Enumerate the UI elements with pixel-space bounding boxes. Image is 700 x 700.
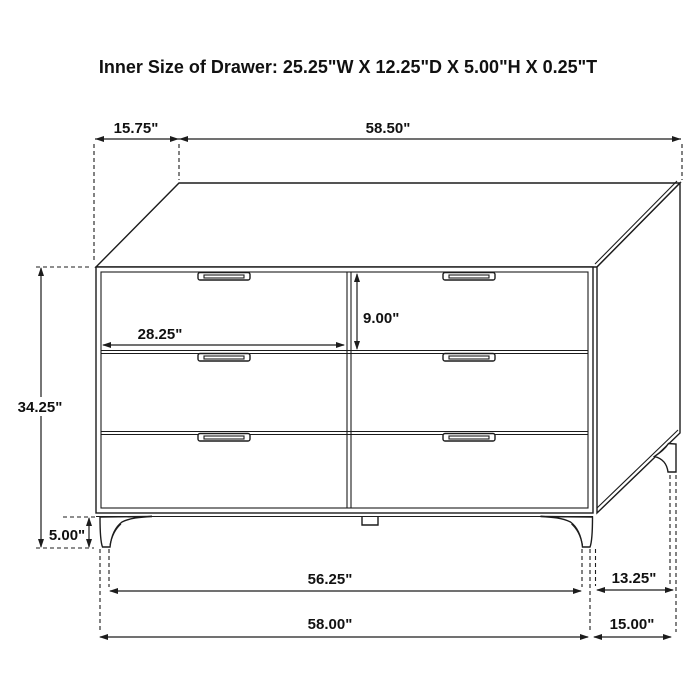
dimension-side-depth-overall: 15.00" <box>593 616 672 640</box>
dim-label-top-back-offset: 15.75" <box>114 120 159 137</box>
dim-label-base-width-between-feet: 56.25" <box>308 571 353 588</box>
arrowhead <box>665 587 674 593</box>
dim-label-leg-height: 5.00" <box>49 527 85 544</box>
arrowhead <box>593 634 602 640</box>
dimension-leg-height: 5.00" <box>49 517 96 548</box>
arrowhead <box>109 588 118 594</box>
drawer-handle-middle-left <box>198 354 250 362</box>
arrowhead <box>179 136 188 142</box>
dim-label-base-width-overall: 58.00" <box>308 616 353 633</box>
drawer-handle-bottom-left <box>198 434 250 442</box>
dim-label-drawer-height: 9.00" <box>363 310 399 327</box>
arrowhead <box>580 634 589 640</box>
drawer-handle-top-right <box>443 273 495 281</box>
dim-label-top-width: 58.50" <box>366 120 411 137</box>
dim-label-drawer-width: 28.25" <box>138 326 183 343</box>
center-support-foot <box>362 517 378 525</box>
dimension-side-depth-between-feet: 13.25" <box>596 570 674 593</box>
arrowhead <box>170 136 179 142</box>
dimension-overall-height: 34.25" <box>12 267 94 548</box>
dresser-front-face <box>96 267 593 513</box>
dimension-diagram: Inner Size of Drawer: 25.25"W X 12.25"D … <box>0 0 700 700</box>
arrowhead <box>86 517 92 526</box>
leg-front-right <box>541 517 593 548</box>
dimension-base-width-overall: 58.00" <box>99 616 589 640</box>
dim-label-overall-height: 34.25" <box>18 399 63 416</box>
arrowhead <box>38 539 44 548</box>
arrowhead <box>86 539 92 548</box>
arrowhead <box>99 634 108 640</box>
arrowhead <box>672 136 681 142</box>
drawer-handle-bottom-right <box>443 434 495 442</box>
arrowhead <box>95 136 104 142</box>
dresser-drawing: Inner Size of Drawer: 25.25"W X 12.25"D … <box>0 0 700 700</box>
dimension-base-width-between-feet: 56.25" <box>109 571 582 594</box>
arrowhead <box>596 587 605 593</box>
arrowhead <box>38 267 44 276</box>
drawer-handle-top-left <box>198 273 250 281</box>
leg-front-left <box>100 517 152 548</box>
arrowhead <box>663 634 672 640</box>
dresser-top-surface <box>96 183 680 267</box>
dim-label-side-depth-overall: 15.00" <box>610 616 655 633</box>
drawer-handle-middle-right <box>443 354 495 362</box>
diagram-title: Inner Size of Drawer: 25.25"W X 12.25"D … <box>99 57 597 77</box>
dim-label-side-depth-between-feet: 13.25" <box>612 570 657 587</box>
arrowhead <box>573 588 582 594</box>
